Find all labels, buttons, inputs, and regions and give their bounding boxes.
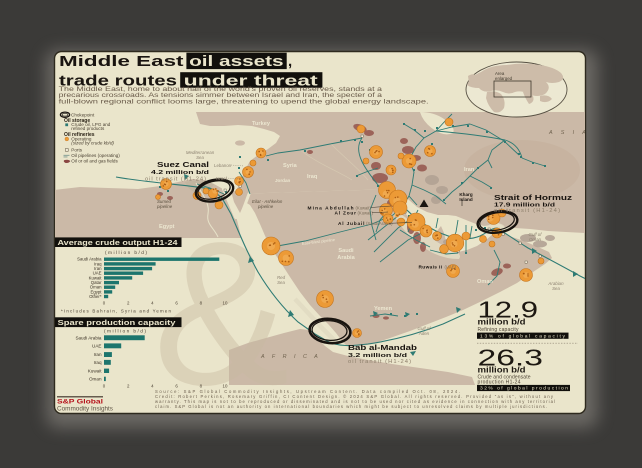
- svg-text:*Includes Bahrain, Syria and Y: *Includes Bahrain, Syria and Yemen: [61, 309, 172, 314]
- svg-text:oil assets: oil assets: [189, 53, 284, 70]
- svg-text:Commodity Insights: Commodity Insights: [57, 405, 114, 412]
- svg-text:pipeline: pipeline: [257, 204, 274, 209]
- svg-text:Island: Island: [459, 197, 472, 202]
- svg-text:Turkey: Turkey: [252, 121, 271, 127]
- svg-text:Iran: Iran: [94, 352, 102, 357]
- svg-text:(UAE): (UAE): [445, 265, 457, 270]
- svg-text:,: ,: [288, 53, 292, 70]
- svg-text:Iran: Iran: [464, 167, 475, 173]
- svg-text:Iraq: Iraq: [94, 360, 102, 365]
- svg-text:S&P Global: S&P Global: [57, 398, 103, 405]
- svg-text:13% of global capacity: 13% of global capacity: [480, 333, 566, 339]
- svg-text:Ports: Ports: [71, 148, 82, 153]
- svg-text:Kuwait: Kuwait: [88, 369, 103, 374]
- svg-text:Strait of Hormuz: Strait of Hormuz: [494, 193, 573, 202]
- svg-text:Sea: Sea: [552, 286, 560, 291]
- svg-text:Al Jubail: Al Jubail: [338, 221, 365, 227]
- svg-text:pipeline: pipeline: [156, 204, 173, 209]
- svg-text:Suez Canal: Suez Canal: [157, 160, 209, 169]
- svg-text:refined products: refined products: [71, 126, 105, 131]
- svg-text:Bab al-Mandab: Bab al-Mandab: [348, 345, 417, 352]
- svg-text:Oil or oil and gas fields: Oil or oil and gas fields: [71, 159, 118, 164]
- svg-text:A S I A: A S I A: [548, 130, 589, 136]
- svg-text:Refining capacity: Refining capacity: [478, 327, 520, 333]
- svg-text:claim. S&P Global is not an au: claim. S&P Global is not an authority on…: [155, 404, 547, 409]
- svg-text:Other*: Other*: [89, 294, 102, 299]
- svg-text:Israel: Israel: [216, 176, 227, 181]
- svg-text:(sized by crude kb/d): (sized by crude kb/d): [71, 141, 114, 146]
- svg-text:Egypt: Egypt: [159, 224, 175, 230]
- svg-text:oil transit (H1-24): oil transit (H1-24): [348, 359, 411, 365]
- svg-text:Aden: Aden: [418, 331, 430, 336]
- svg-text:Arabia: Arabia: [337, 255, 355, 261]
- svg-text:oil transit (H1-24): oil transit (H1-24): [145, 177, 206, 183]
- svg-text:(Kuwait): (Kuwait): [358, 211, 374, 216]
- svg-text:Lebanon: Lebanon: [214, 163, 232, 168]
- svg-text:10: 10: [223, 301, 228, 306]
- svg-text:Spare production capacity: Spare production capacity: [58, 320, 176, 327]
- svg-text:UAE: UAE: [92, 344, 101, 349]
- svg-text:A F R I C A: A F R I C A: [260, 354, 321, 360]
- svg-text:4.2 million b/d: 4.2 million b/d: [151, 170, 210, 176]
- svg-text:Al Zour: Al Zour: [335, 211, 357, 217]
- svg-text:Yemen: Yemen: [374, 306, 393, 312]
- svg-text:Chokepoint: Chokepoint: [71, 112, 95, 117]
- svg-text:Middle East: Middle East: [59, 53, 184, 70]
- svg-text:Syria: Syria: [283, 163, 298, 169]
- svg-text:Oil pipelines (operating): Oil pipelines (operating): [71, 153, 120, 158]
- svg-text:Oman: Oman: [89, 377, 102, 382]
- svg-text:Oman: Oman: [529, 237, 542, 242]
- svg-text:Saudi: Saudi: [338, 248, 354, 254]
- svg-text:full-blown regional conflict l: full-blown regional conflict looms large…: [59, 99, 429, 106]
- svg-text:Ruwais II: Ruwais II: [419, 265, 443, 271]
- svg-text:Saudi Arabia: Saudi Arabia: [75, 335, 101, 340]
- svg-text:Oman: Oman: [477, 279, 493, 285]
- svg-text:10: 10: [223, 384, 228, 389]
- svg-text:Average crude output H1-24: Average crude output H1-24: [58, 240, 178, 247]
- svg-text:enlarged: enlarged: [495, 76, 513, 81]
- svg-text:Sea: Sea: [277, 280, 285, 285]
- svg-text:Jordan: Jordan: [275, 178, 291, 183]
- svg-text:million b/d: million b/d: [478, 318, 526, 327]
- svg-text:oil transit (H1-24): oil transit (H1-24): [494, 208, 560, 214]
- svg-text:Iraq: Iraq: [307, 174, 318, 180]
- svg-text:production H1-24: production H1-24: [478, 379, 521, 385]
